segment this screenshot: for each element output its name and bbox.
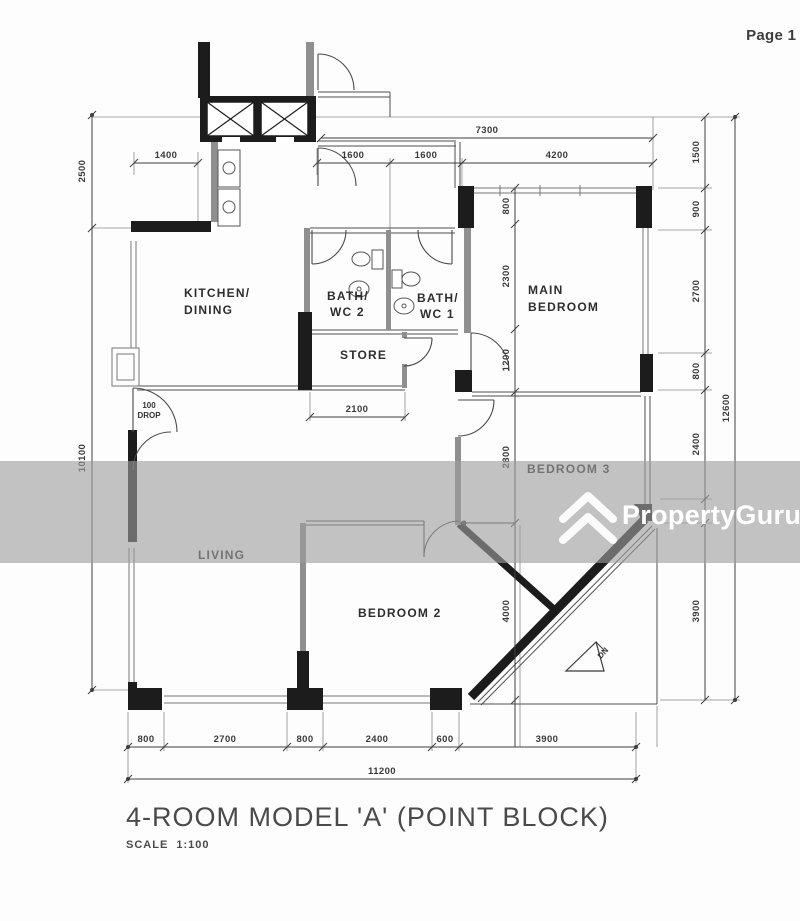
room-label-bedroom2: BEDROOM 2 bbox=[358, 606, 441, 620]
dim-bottom-2700: 2700 bbox=[214, 734, 237, 745]
room-label-kitchen-1: KITCHEN/ bbox=[184, 286, 250, 300]
corridor-door bbox=[318, 54, 354, 90]
dim-bottom-2400: 2400 bbox=[366, 734, 389, 745]
kitchen-burner bbox=[223, 201, 235, 213]
floor-plan-page: Page 1 ( bbox=[0, 0, 800, 921]
plan-title: 4-ROOM MODEL 'A' (POINT BLOCK) bbox=[126, 802, 609, 833]
plan-scale: SCALE 1:100 bbox=[126, 839, 609, 851]
dim-bottom-800a: 800 bbox=[137, 734, 154, 745]
dim-top-bath1: 1600 bbox=[415, 150, 438, 161]
room-label-main-bedroom-1: MAIN bbox=[528, 283, 563, 297]
dim-bottom-overall: 11200 bbox=[368, 766, 396, 777]
dim-store-2100: 2100 bbox=[346, 404, 369, 415]
room-label-kitchen-2: DINING bbox=[184, 303, 233, 317]
dim-right-2400: 2400 bbox=[691, 433, 702, 456]
dim-right-overall: 12600 bbox=[721, 394, 732, 422]
room-label-bath1-2: WC 1 bbox=[420, 307, 455, 321]
dim-inner-2300: 2300 bbox=[501, 265, 512, 288]
bath2-toilet-bowl bbox=[352, 252, 370, 266]
drop-label-drop: DROP bbox=[137, 411, 161, 420]
store-door bbox=[404, 338, 432, 366]
bedroom3-door bbox=[458, 400, 494, 436]
dim-right-3900: 3900 bbox=[691, 600, 702, 623]
room-label-store: STORE bbox=[340, 348, 387, 362]
room-label-bath2-2: WC 2 bbox=[330, 305, 365, 319]
dim-top-kitchen: 1400 bbox=[155, 150, 178, 161]
dim-right-900: 900 bbox=[691, 200, 702, 217]
dim-bottom-3900: 3900 bbox=[536, 734, 559, 745]
bath2-toilet-tank bbox=[372, 250, 383, 269]
drop-label-100: 100 bbox=[142, 401, 156, 410]
dim-left-2500: 2500 bbox=[77, 160, 88, 183]
dim-top-bath2: 1600 bbox=[342, 150, 365, 161]
dim-bottom-800b: 800 bbox=[296, 734, 313, 745]
dim-inner-800: 800 bbox=[501, 197, 512, 214]
dim-bottom-600: 600 bbox=[436, 734, 453, 745]
room-label-bath2-1: BATH/ bbox=[327, 289, 369, 303]
kitchen-sink bbox=[223, 162, 235, 174]
bath1-door bbox=[418, 230, 452, 264]
room-label-bath1-1: BATH/ bbox=[417, 291, 459, 305]
room-label-main-bedroom-2: BEDROOM bbox=[528, 300, 599, 314]
bath2-door bbox=[312, 230, 346, 264]
watermark-brand-text: PropertyGuru bbox=[622, 500, 800, 530]
down-indicator: DN bbox=[566, 642, 610, 671]
dim-right-1500: 1500 bbox=[691, 141, 702, 164]
bath1-toilet-bowl bbox=[402, 272, 420, 286]
dim-top-overall: 7300 bbox=[476, 125, 499, 136]
dim-right-2700: 2700 bbox=[691, 280, 702, 303]
dim-inner-4000: 4000 bbox=[501, 600, 512, 623]
dim-top-main: 4200 bbox=[546, 150, 569, 161]
bath1-toilet-tank bbox=[392, 270, 402, 288]
watermark: PropertyGuru bbox=[0, 461, 800, 563]
dim-right-800: 800 bbox=[691, 362, 702, 379]
title-block: 4-ROOM MODEL 'A' (POINT BLOCK) SCALE 1:1… bbox=[126, 802, 609, 851]
floor-plan-drawing: DN bbox=[0, 0, 800, 800]
dim-inner-1200: 1200 bbox=[501, 349, 512, 372]
